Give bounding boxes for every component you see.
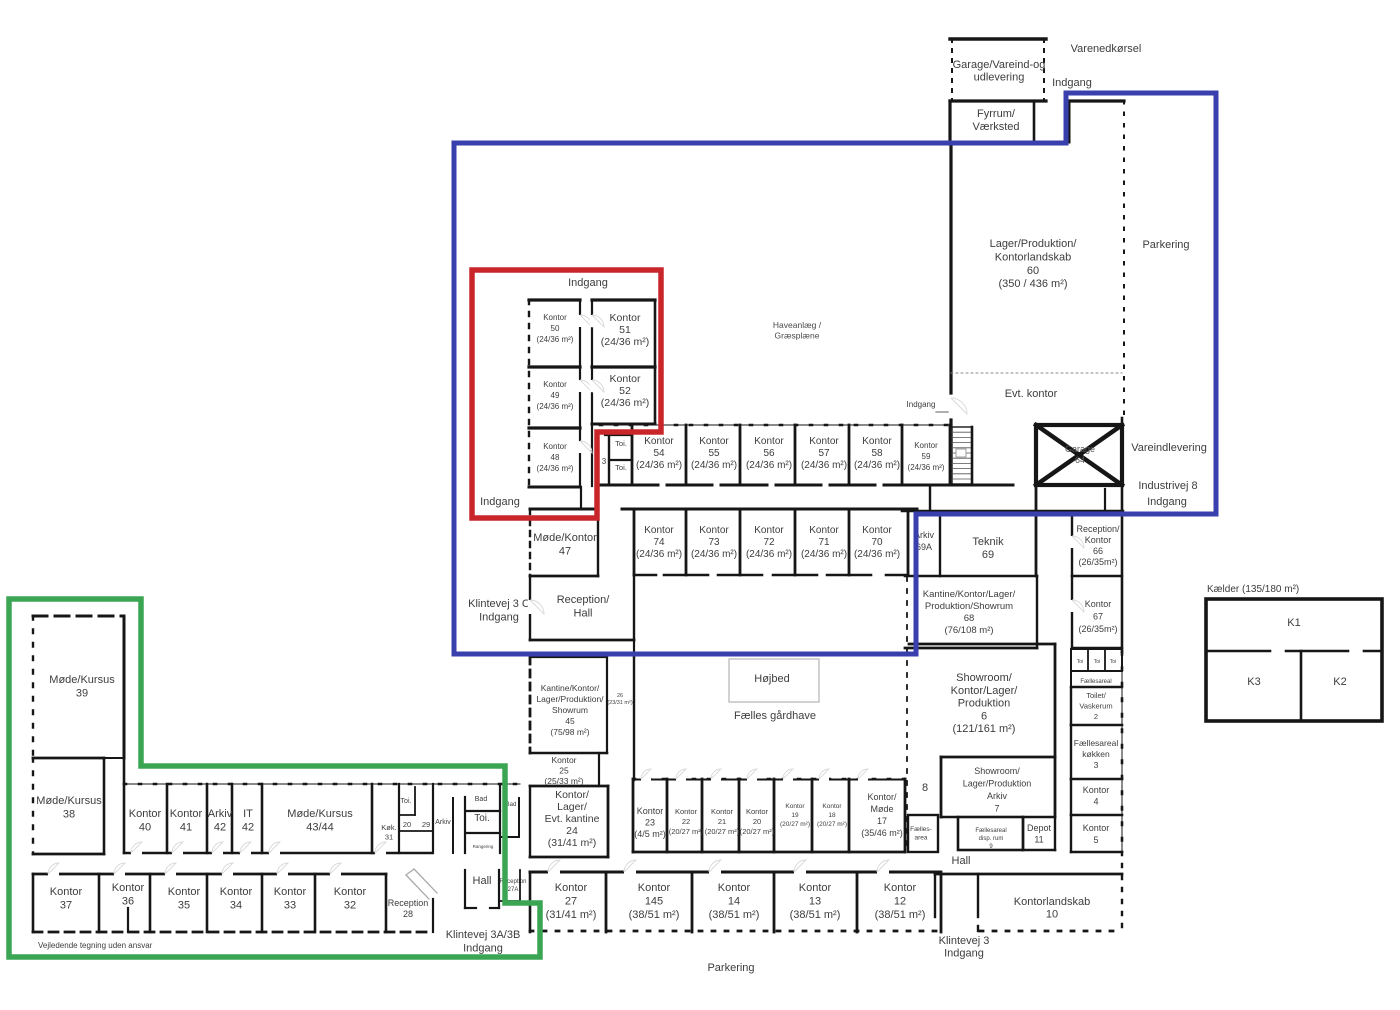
svg-text:Indgang: Indgang: [907, 400, 936, 409]
svg-text:Bad: Bad: [475, 796, 488, 803]
svg-text:K1: K1: [1287, 617, 1300, 629]
svg-text:Fællesareal: Fællesareal: [1080, 679, 1111, 685]
svg-text:Arkiv: Arkiv: [435, 819, 451, 826]
svg-text:Varenedkørsel: Varenedkørsel: [1071, 43, 1142, 55]
svg-text:Toi: Toi: [1094, 659, 1100, 665]
svg-text:Højbed: Højbed: [754, 673, 789, 685]
svg-text:29: 29: [422, 820, 430, 829]
svg-text:Toi.: Toi.: [401, 798, 412, 805]
svg-text:Parkering: Parkering: [1142, 239, 1189, 251]
svg-text:Fyrrum/Værksted: Fyrrum/Værksted: [972, 108, 1019, 133]
svg-text:IT42: IT42: [242, 808, 254, 833]
svg-text:Klintevej 3Indgang: Klintevej 3Indgang: [939, 935, 990, 960]
svg-text:Hall: Hall: [952, 855, 971, 867]
svg-text:Vareindlevering: Vareindlevering: [1131, 442, 1207, 454]
svg-text:8: 8: [922, 782, 928, 794]
svg-text:Indgang: Indgang: [480, 496, 520, 508]
svg-text:Toi.: Toi.: [615, 463, 627, 472]
svg-text:Indgang: Indgang: [568, 277, 608, 289]
svg-text:Industrivej 8: Industrivej 8: [1138, 480, 1197, 492]
svg-text:Showroom/Kontor/Lager/Produkti: Showroom/Kontor/Lager/Produktion6(121/16…: [951, 672, 1019, 735]
svg-text:K3: K3: [1247, 676, 1260, 688]
svg-text:Haveanlæg /Græsplæne: Haveanlæg /Græsplæne: [773, 320, 822, 340]
svg-text:Kælder (135/180 m²): Kælder (135/180 m²): [1207, 584, 1299, 595]
svg-text:20: 20: [403, 820, 411, 829]
svg-text:Toi: Toi: [1110, 659, 1116, 665]
svg-text:Parkering: Parkering: [707, 962, 754, 974]
svg-text:Indgang: Indgang: [1147, 496, 1187, 508]
svg-text:Toi: Toi: [1077, 659, 1083, 665]
svg-text:Evt. kontor: Evt. kontor: [1005, 388, 1058, 400]
svg-text:Fælles gårdhave: Fælles gårdhave: [734, 710, 816, 722]
svg-text:3: 3: [602, 457, 607, 466]
svg-text:Toi.: Toi.: [615, 439, 627, 448]
svg-text:Hall: Hall: [473, 875, 492, 887]
svg-text:Toi.: Toi.: [474, 813, 490, 824]
svg-text:K2: K2: [1333, 676, 1346, 688]
svg-text:Indgang: Indgang: [1052, 77, 1092, 89]
svg-text:Rangering: Rangering: [473, 844, 494, 849]
svg-text:Vejledende tegning uden ansvar: Vejledende tegning uden ansvar: [38, 941, 153, 950]
